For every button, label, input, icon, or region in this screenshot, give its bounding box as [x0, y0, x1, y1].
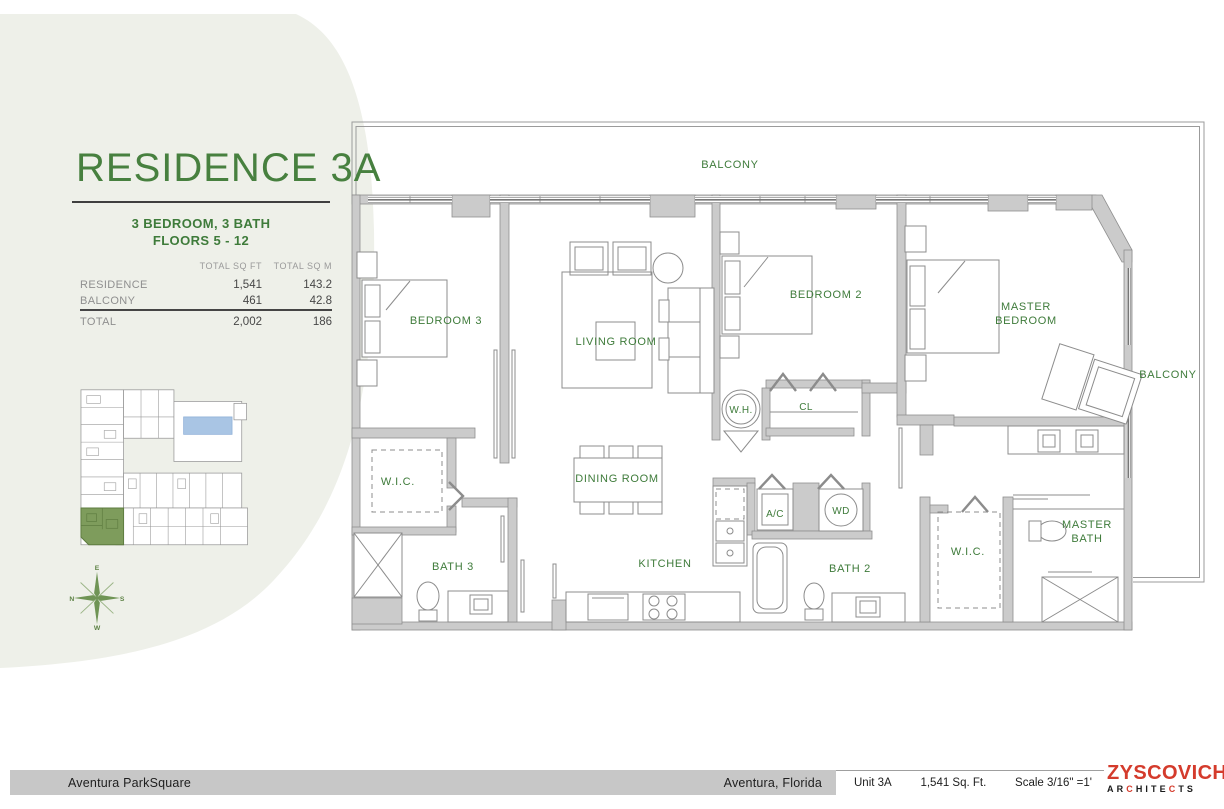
row-residence-label: RESIDENCE	[80, 277, 192, 293]
logo-firm-subtitle: ARCHITECTS	[1107, 785, 1219, 794]
bath2-fixtures	[753, 543, 905, 622]
compass-letter-left: N	[69, 596, 74, 603]
bed-master	[905, 226, 999, 381]
label-dining-room: DINING ROOM	[575, 473, 658, 485]
label-water-heater: W.H.	[729, 405, 752, 416]
compass-letter-top: E	[95, 565, 100, 572]
logo-firm-name: ZYSCOVICH	[1107, 763, 1219, 783]
spacer	[80, 261, 192, 277]
label-bedroom3: BEDROOM 3	[410, 315, 482, 327]
row-total-sqm: 186	[262, 309, 332, 330]
page-title: RESIDENCE 3A	[76, 146, 381, 191]
label-living-room: LIVING ROOM	[575, 336, 656, 348]
footer-unit-area: 1,541 Sq. Ft.	[920, 777, 986, 789]
keyplan-middle-units	[124, 473, 242, 508]
compass-letter-bottom: W	[94, 625, 101, 630]
label-bath2: BATH 2	[829, 563, 871, 575]
row-total-sqft: 2,002	[192, 309, 262, 330]
floorplan-sheet: { "colors": { "accent_green": "#47803f",…	[0, 0, 1224, 809]
label-bedroom2: BEDROOM 2	[790, 289, 862, 301]
label-master-bath-2: BATH	[1071, 533, 1102, 545]
col-header-sqft: TOTAL SQ FT	[192, 261, 262, 277]
logo-sub-part: TS	[1178, 784, 1196, 794]
row-total-label: TOTAL	[80, 309, 192, 330]
row-balcony-sqm: 42.8	[262, 293, 332, 309]
wh-door	[724, 431, 758, 452]
footer-project-name: Aventura ParkSquare	[68, 776, 191, 790]
architect-logo: ZYSCOVICH ARCHITECTS	[1107, 763, 1219, 794]
label-balcony-top: BALCONY	[701, 159, 758, 171]
label-closet: CL	[799, 402, 813, 413]
sofa	[668, 288, 714, 393]
footer-unit-strip: Unit 3A 1,541 Sq. Ft. Scale 3/16" =1'	[836, 770, 1104, 795]
area-table: TOTAL SQ FT TOTAL SQ M RESIDENCE 1,541 1…	[80, 261, 332, 330]
row-balcony-sqft: 461	[192, 293, 262, 309]
label-balcony-right: BALCONY	[1139, 369, 1196, 381]
keyplan-top-block	[124, 390, 174, 438]
master-bath-fixtures	[1013, 495, 1124, 622]
unit-summary-line2: FLOORS 5 - 12	[72, 232, 330, 249]
closet-dashed-lines	[372, 450, 1000, 608]
unit-summary-line1: 3 BEDROOM, 3 BATH	[72, 215, 330, 232]
logo-sub-part: AR	[1107, 784, 1126, 794]
row-residence-sqm: 143.2	[262, 277, 332, 293]
footer-bar: Aventura ParkSquare Aventura, Florida	[10, 770, 836, 795]
label-master-bedroom-1: MASTER	[1001, 301, 1051, 313]
label-master-bedroom-2: BEDROOM	[995, 315, 1057, 327]
keyplan-pool	[184, 417, 232, 434]
label-wd: WD	[832, 506, 849, 517]
row-balcony-label: BALCONY	[80, 293, 192, 309]
label-wic-left: W.I.C.	[381, 476, 415, 488]
logo-sub-part-red: C	[1169, 784, 1179, 794]
logo-sub-part: HITE	[1136, 784, 1169, 794]
footer-location: Aventura, Florida	[724, 776, 822, 790]
label-ac: A/C	[766, 509, 784, 520]
compass-rose: E N S W	[68, 564, 126, 630]
balcony-console	[1008, 426, 1124, 454]
label-kitchen: KITCHEN	[638, 558, 691, 570]
footer-scale: Scale 3/16" =1'	[1015, 777, 1092, 789]
title-underline	[72, 201, 330, 203]
footer-unit-number: Unit 3A	[854, 777, 892, 789]
building-key-plan	[74, 384, 270, 568]
row-residence-sqft: 1,541	[192, 277, 262, 293]
label-master-bath-1: MASTER	[1062, 519, 1112, 531]
logo-sub-part-red: C	[1126, 784, 1136, 794]
living-room-furniture	[562, 242, 714, 393]
label-wic-master: W.I.C.	[951, 546, 985, 558]
compass-letter-right: S	[120, 596, 125, 603]
unit-summary: 3 BEDROOM, 3 BATH FLOORS 5 - 12	[72, 215, 330, 249]
label-bath3: BATH 3	[432, 561, 474, 573]
entry-stub	[552, 600, 566, 630]
compass-point-top	[94, 572, 100, 598]
col-header-sqm: TOTAL SQ M	[262, 261, 332, 277]
